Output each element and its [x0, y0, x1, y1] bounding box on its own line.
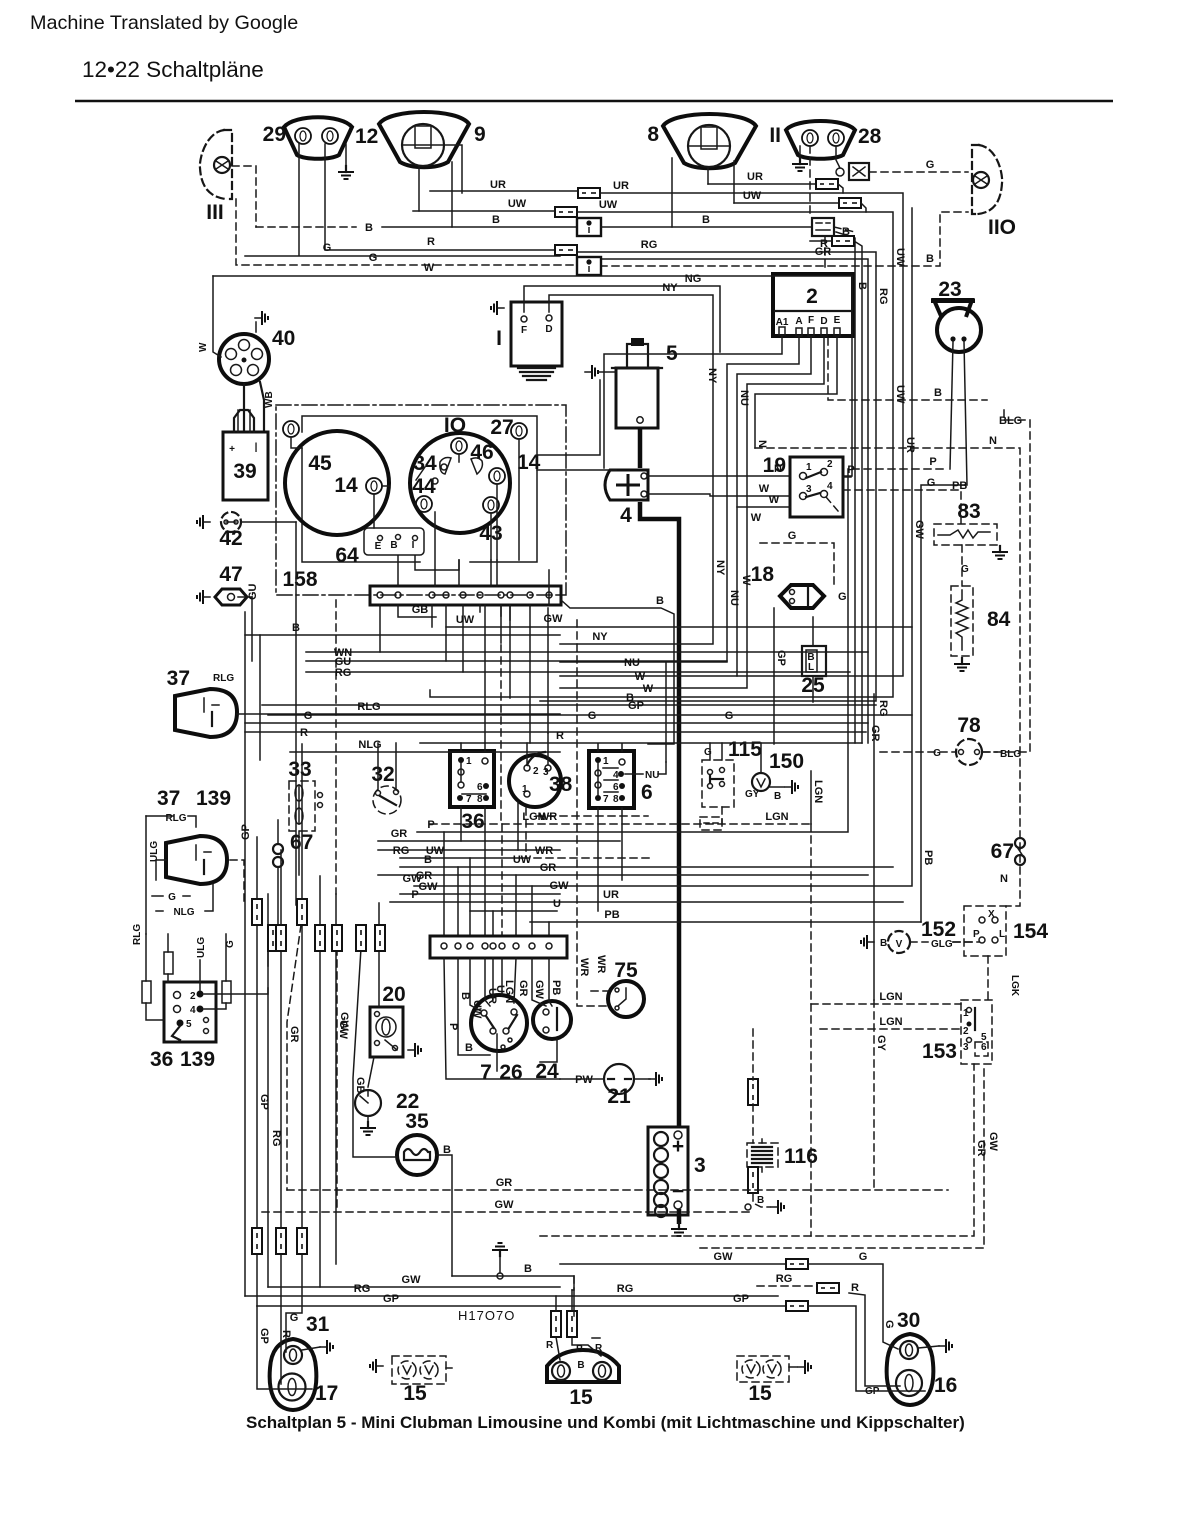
svg-text:6: 6: [477, 782, 483, 793]
svg-text:78: 78: [957, 714, 981, 737]
svg-text:29: 29: [263, 123, 286, 146]
svg-text:Machine Translated by Google: Machine Translated by Google: [30, 12, 298, 34]
svg-text:R: R: [427, 236, 435, 248]
svg-text:GB: GB: [354, 1077, 366, 1094]
svg-text:UR: UR: [747, 171, 763, 183]
svg-text:2: 2: [533, 766, 539, 777]
svg-text:WB: WB: [264, 391, 275, 408]
svg-text:8: 8: [477, 794, 483, 805]
svg-text:RG: RG: [335, 667, 352, 679]
svg-text:153: 153: [922, 1040, 957, 1063]
svg-text:36: 36: [461, 810, 484, 833]
svg-text:1: 1: [522, 784, 528, 795]
svg-text:B: B: [465, 1042, 473, 1054]
svg-text:67: 67: [991, 840, 1014, 863]
svg-text:GR: GR: [391, 828, 408, 840]
svg-text:37: 37: [157, 787, 180, 810]
svg-text:GP: GP: [258, 1328, 270, 1344]
svg-text:GP: GP: [240, 824, 252, 840]
svg-text:RLG: RLG: [132, 924, 143, 945]
svg-text:64: 64: [335, 544, 359, 567]
svg-text:RLG: RLG: [213, 673, 234, 684]
svg-text:GW: GW: [337, 1020, 349, 1040]
svg-text:35: 35: [405, 1110, 429, 1133]
svg-text:GP: GP: [258, 1094, 270, 1110]
svg-text:G: G: [859, 1251, 868, 1263]
svg-text:PB: PB: [604, 909, 619, 921]
svg-text:UW: UW: [471, 1000, 483, 1019]
svg-text:LGN: LGN: [503, 980, 515, 1003]
svg-text:GB: GB: [412, 604, 429, 616]
svg-text:GW: GW: [402, 1274, 422, 1286]
svg-text:33: 33: [288, 758, 311, 781]
svg-text:B: B: [390, 540, 397, 551]
svg-text:NY: NY: [662, 282, 678, 294]
svg-text:9: 9: [474, 123, 486, 146]
svg-text:P: P: [973, 929, 980, 940]
svg-text:1: 1: [603, 756, 609, 767]
svg-text:I: I: [496, 327, 502, 350]
svg-text:GY: GY: [875, 1035, 887, 1052]
svg-text:III: III: [206, 201, 224, 224]
svg-text:139: 139: [180, 1048, 215, 1071]
svg-text:14: 14: [334, 474, 358, 497]
svg-text:39: 39: [233, 460, 256, 483]
svg-text:B: B: [577, 1360, 584, 1371]
svg-text:2: 2: [963, 1026, 969, 1037]
svg-text:1: 1: [806, 462, 812, 473]
svg-text:ULG: ULG: [149, 841, 160, 862]
svg-text:BLG: BLG: [999, 415, 1022, 427]
svg-text:RG: RG: [877, 288, 889, 305]
svg-text:37: 37: [167, 667, 190, 690]
svg-text:IIO: IIO: [988, 216, 1016, 239]
svg-text:GR: GR: [496, 1177, 513, 1189]
svg-text:GR: GR: [540, 862, 557, 874]
svg-text:B: B: [757, 1195, 764, 1206]
svg-text:RLG: RLG: [165, 813, 186, 824]
svg-text:15: 15: [403, 1382, 427, 1405]
svg-text:Schaltplan 5 - Mini Clubman Li: Schaltplan 5 - Mini Clubman Limousine un…: [246, 1413, 965, 1432]
svg-text:4: 4: [827, 481, 833, 492]
svg-text:G: G: [168, 892, 176, 903]
svg-text:18: 18: [751, 563, 775, 586]
svg-text:2: 2: [190, 991, 196, 1002]
svg-text:8: 8: [613, 794, 619, 805]
svg-text:A: A: [795, 316, 802, 327]
svg-text:34: 34: [413, 452, 437, 475]
svg-text:7: 7: [480, 1061, 492, 1084]
svg-text:G: G: [788, 530, 797, 542]
svg-text:30: 30: [897, 1309, 920, 1332]
svg-text:GW: GW: [550, 880, 570, 892]
svg-text:GU: GU: [247, 583, 259, 600]
svg-text:L: L: [999, 929, 1005, 940]
svg-text:UW: UW: [456, 614, 475, 626]
svg-text:42: 42: [219, 527, 242, 550]
svg-text:16: 16: [934, 1374, 957, 1397]
svg-text:RLG: RLG: [357, 701, 380, 713]
svg-text:B: B: [459, 992, 471, 1000]
svg-text:UW: UW: [894, 248, 906, 267]
svg-text:G: G: [927, 477, 936, 489]
svg-text:154: 154: [1013, 920, 1048, 943]
svg-text:158: 158: [282, 568, 317, 591]
svg-text:UW: UW: [743, 190, 762, 202]
svg-text:G: G: [369, 252, 378, 264]
svg-text:G: G: [588, 710, 597, 722]
svg-text:D: D: [545, 324, 552, 335]
svg-text:139: 139: [196, 787, 231, 810]
svg-text:PB: PB: [550, 980, 562, 995]
svg-text:P: P: [847, 464, 854, 476]
svg-text:X: X: [988, 909, 995, 920]
svg-text:67: 67: [290, 831, 313, 854]
svg-text:II: II: [769, 124, 781, 147]
svg-text:P: P: [427, 819, 434, 831]
svg-text:6: 6: [981, 1042, 987, 1053]
svg-text:3: 3: [806, 484, 812, 495]
svg-text:GW: GW: [987, 1132, 999, 1152]
svg-text:UW: UW: [513, 854, 532, 866]
svg-text:28: 28: [858, 125, 882, 148]
svg-text:R: R: [300, 727, 308, 739]
svg-text:3: 3: [963, 1042, 969, 1053]
svg-text:GW: GW: [533, 980, 545, 1000]
svg-text:RG: RG: [617, 1283, 634, 1295]
svg-text:N: N: [989, 435, 997, 447]
svg-text:4: 4: [620, 504, 632, 527]
svg-text:H17O7O: H17O7O: [458, 1308, 515, 1323]
svg-text:GW: GW: [419, 881, 439, 893]
svg-text:RG: RG: [354, 1283, 371, 1295]
svg-text:45: 45: [308, 452, 332, 475]
svg-text:R: R: [546, 1340, 554, 1351]
svg-text:NY: NY: [706, 368, 718, 384]
svg-text:W: W: [769, 494, 780, 506]
svg-text:GP: GP: [628, 700, 644, 712]
svg-text:W: W: [740, 575, 752, 586]
svg-text:LGN: LGN: [879, 991, 902, 1003]
svg-text:12: 12: [355, 125, 378, 148]
svg-text:NU: NU: [738, 390, 750, 406]
svg-text:115: 115: [728, 738, 762, 761]
svg-text:BLG: BLG: [1000, 749, 1021, 760]
svg-text:+: +: [229, 444, 235, 455]
svg-text:P: P: [411, 889, 418, 901]
svg-text:R: R: [556, 730, 564, 742]
svg-text:−: −: [672, 1180, 684, 1203]
svg-text:G: G: [304, 710, 313, 722]
svg-text:GR: GR: [517, 980, 529, 997]
svg-text:N: N: [774, 463, 782, 475]
svg-text:15: 15: [748, 1382, 772, 1405]
svg-text:W: W: [198, 342, 209, 352]
svg-text:P: P: [929, 456, 936, 468]
svg-text:B: B: [492, 214, 500, 226]
svg-text:1: 1: [963, 1008, 969, 1019]
svg-text:R: R: [280, 1330, 292, 1338]
svg-text:B: B: [702, 214, 710, 226]
svg-text:WR: WR: [535, 845, 553, 857]
svg-text:E: E: [375, 541, 382, 552]
svg-text:P: P: [447, 1023, 459, 1030]
svg-text:47: 47: [219, 563, 242, 586]
svg-text:75: 75: [614, 959, 638, 982]
svg-text:27: 27: [490, 416, 513, 439]
svg-text:W: W: [643, 683, 654, 695]
svg-text:B: B: [576, 1344, 583, 1355]
svg-text:W: W: [424, 262, 435, 274]
svg-text:7: 7: [603, 794, 609, 805]
svg-text:NY: NY: [714, 560, 726, 576]
svg-text:GW: GW: [544, 613, 564, 625]
svg-text:31: 31: [306, 1313, 330, 1336]
svg-text:G: G: [883, 1320, 895, 1329]
svg-text:RG: RG: [776, 1273, 793, 1285]
svg-text:UR: UR: [613, 180, 629, 192]
svg-text:RG: RG: [877, 700, 889, 717]
svg-text:2: 2: [827, 459, 833, 470]
svg-text:UW: UW: [508, 198, 527, 210]
svg-text:B: B: [880, 938, 887, 949]
svg-text:NU: NU: [645, 770, 659, 781]
svg-text:23: 23: [938, 278, 961, 301]
svg-text:R: R: [595, 1343, 603, 1354]
svg-text:150: 150: [769, 750, 804, 773]
svg-text:NY: NY: [592, 631, 608, 643]
svg-text:40: 40: [272, 327, 295, 350]
svg-text:B: B: [365, 222, 373, 234]
svg-text:36: 36: [150, 1048, 173, 1071]
svg-text:1: 1: [466, 756, 472, 767]
svg-text:F: F: [808, 315, 814, 326]
svg-text:26: 26: [499, 1061, 522, 1084]
svg-text:2: 2: [806, 285, 818, 308]
svg-text:W: W: [635, 671, 646, 683]
svg-text:LGN: LGN: [765, 811, 788, 823]
svg-text:V: V: [896, 939, 903, 950]
svg-text:UW: UW: [894, 385, 906, 404]
svg-text:NG: NG: [685, 273, 702, 285]
svg-text:B: B: [774, 791, 781, 802]
svg-text:D: D: [820, 316, 827, 327]
svg-text:E: E: [834, 315, 841, 326]
svg-text:3: 3: [694, 1154, 706, 1177]
svg-text:GW: GW: [913, 520, 925, 540]
svg-text:38: 38: [549, 773, 573, 796]
svg-text:G: G: [290, 1312, 299, 1324]
svg-text:4: 4: [190, 1005, 196, 1016]
svg-text:6: 6: [641, 781, 653, 804]
svg-text:B: B: [656, 595, 664, 607]
svg-text:15: 15: [569, 1386, 593, 1409]
svg-text:RG: RG: [393, 845, 410, 857]
svg-text:RG: RG: [641, 239, 658, 251]
svg-text:GP: GP: [733, 1293, 749, 1305]
svg-text:B: B: [524, 1263, 532, 1275]
svg-text:UR: UR: [904, 437, 916, 453]
svg-text:WR: WR: [578, 958, 590, 976]
svg-text:WR: WR: [595, 955, 607, 973]
svg-text:U: U: [553, 898, 561, 910]
svg-text:B: B: [443, 1144, 451, 1156]
svg-text:116: 116: [784, 1145, 818, 1168]
svg-text:ULG: ULG: [196, 937, 207, 958]
svg-text:GW: GW: [495, 1199, 515, 1211]
svg-text:N: N: [756, 440, 768, 448]
svg-text:B: B: [926, 253, 934, 265]
svg-text:G: G: [933, 748, 941, 759]
svg-text:12•22 Schaltpläne: 12•22 Schaltpläne: [82, 57, 264, 82]
svg-text:F: F: [521, 325, 527, 336]
svg-text:GW: GW: [714, 1251, 734, 1263]
svg-text:|: |: [255, 442, 258, 453]
svg-text:20: 20: [382, 983, 405, 1006]
svg-text:NLG: NLG: [173, 907, 194, 918]
svg-text:G: G: [838, 591, 847, 603]
svg-text:LGK: LGK: [1009, 975, 1020, 997]
svg-text:G: G: [323, 242, 332, 254]
svg-text:N: N: [1000, 873, 1008, 885]
svg-text:G: G: [725, 710, 734, 722]
svg-text:G: G: [704, 747, 712, 758]
svg-text:R: R: [851, 1282, 859, 1294]
svg-text:B: B: [934, 387, 942, 399]
svg-text:GR: GR: [975, 1140, 987, 1157]
svg-text:LGN: LGN: [812, 780, 824, 803]
svg-text:5: 5: [186, 1019, 192, 1030]
svg-text:B: B: [424, 854, 432, 866]
svg-text:UR: UR: [490, 179, 506, 191]
svg-text:RG: RG: [270, 1130, 282, 1147]
svg-text:7: 7: [466, 794, 472, 805]
svg-text:21: 21: [607, 1085, 631, 1108]
svg-text:W: W: [751, 512, 762, 524]
svg-text:I: I: [412, 540, 415, 551]
svg-text:GR: GR: [869, 725, 881, 742]
svg-text:LGN: LGN: [879, 1016, 902, 1028]
svg-text:32: 32: [371, 763, 394, 786]
svg-text:PW: PW: [575, 1074, 593, 1086]
svg-text:NU: NU: [728, 590, 740, 606]
svg-text:G: G: [926, 159, 935, 171]
svg-text:84: 84: [987, 608, 1011, 631]
svg-text:17: 17: [315, 1382, 338, 1405]
svg-text:UW: UW: [599, 199, 618, 211]
svg-text:+: +: [672, 1135, 684, 1158]
svg-text:PB: PB: [922, 850, 934, 865]
svg-text:NU: NU: [624, 657, 640, 669]
svg-text:8: 8: [647, 123, 659, 146]
svg-text:152: 152: [921, 918, 956, 941]
svg-text:UR: UR: [603, 889, 619, 901]
svg-text:GR: GR: [288, 1026, 300, 1043]
svg-text:GLG: GLG: [931, 939, 953, 950]
svg-text:GP: GP: [383, 1293, 399, 1305]
